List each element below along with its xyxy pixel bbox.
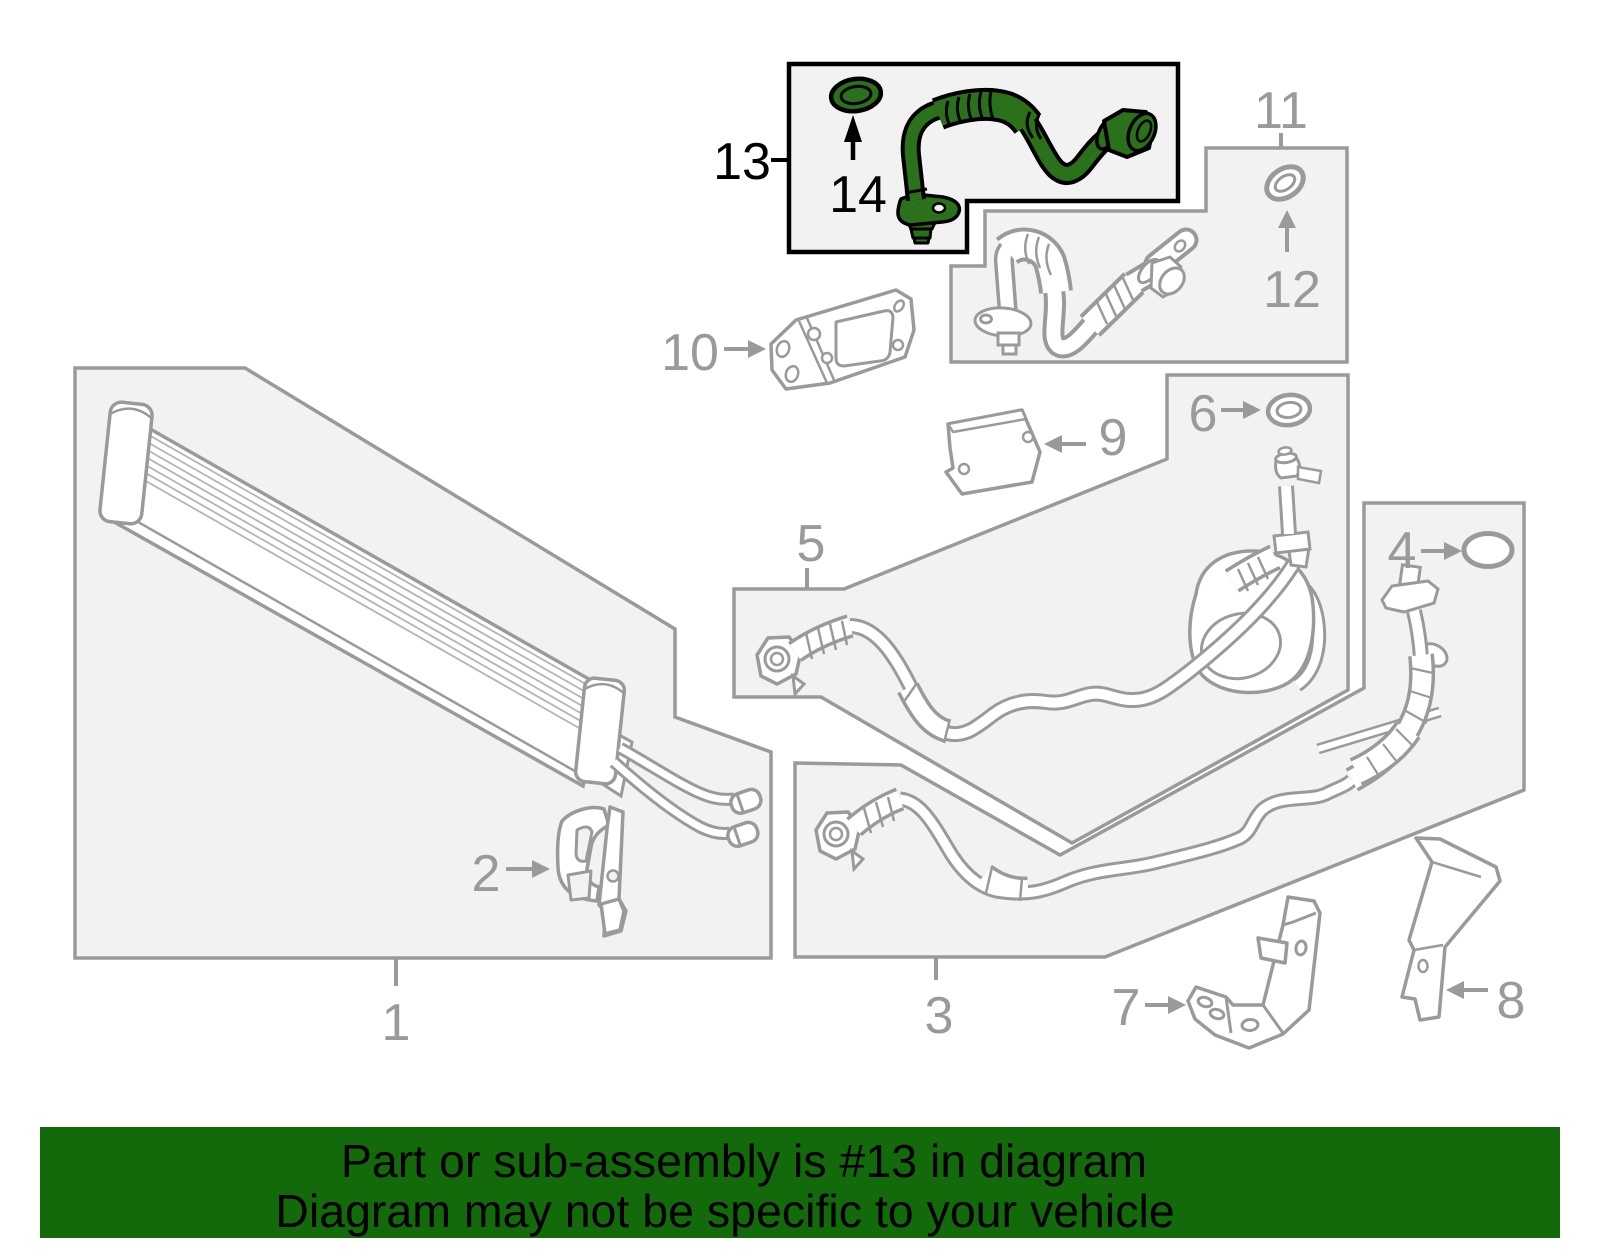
svg-text:Part or sub-assembly is #13 in: Part or sub-assembly is #13 in diagram xyxy=(341,1135,1147,1187)
svg-text:1: 1 xyxy=(382,994,411,1052)
svg-text:12: 12 xyxy=(1263,261,1321,319)
svg-text:11: 11 xyxy=(1254,82,1308,140)
svg-text:7: 7 xyxy=(1112,979,1141,1037)
svg-text:3: 3 xyxy=(925,987,954,1045)
svg-text:14: 14 xyxy=(829,166,887,224)
svg-text:8: 8 xyxy=(1497,972,1526,1030)
svg-text:2: 2 xyxy=(472,845,501,903)
svg-text:13: 13 xyxy=(713,133,771,191)
svg-text:9: 9 xyxy=(1099,409,1128,467)
svg-text:5: 5 xyxy=(797,515,826,573)
svg-text:Diagram may not be specific to: Diagram may not be specific to your vehi… xyxy=(275,1185,1174,1237)
svg-text:6: 6 xyxy=(1189,385,1218,443)
svg-text:4: 4 xyxy=(1388,522,1417,580)
svg-text:10: 10 xyxy=(661,324,719,382)
